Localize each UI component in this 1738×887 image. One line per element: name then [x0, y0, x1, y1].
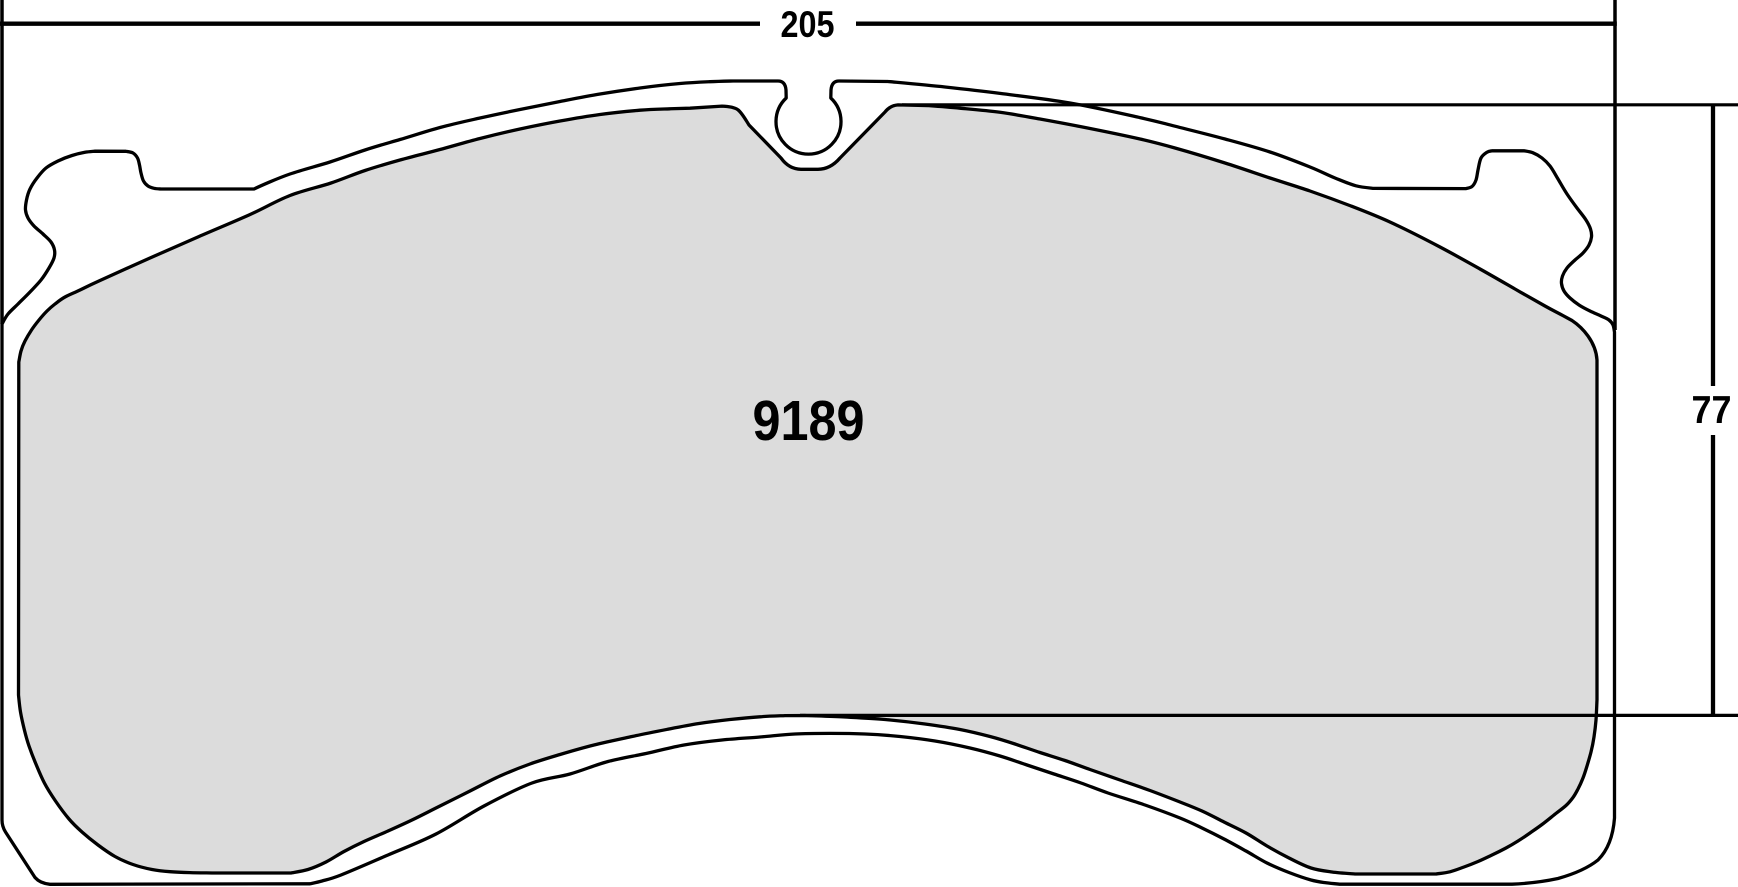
svg-text:77: 77	[1692, 389, 1732, 432]
svg-text:9189: 9189	[753, 389, 865, 453]
svg-text:205: 205	[781, 3, 835, 45]
